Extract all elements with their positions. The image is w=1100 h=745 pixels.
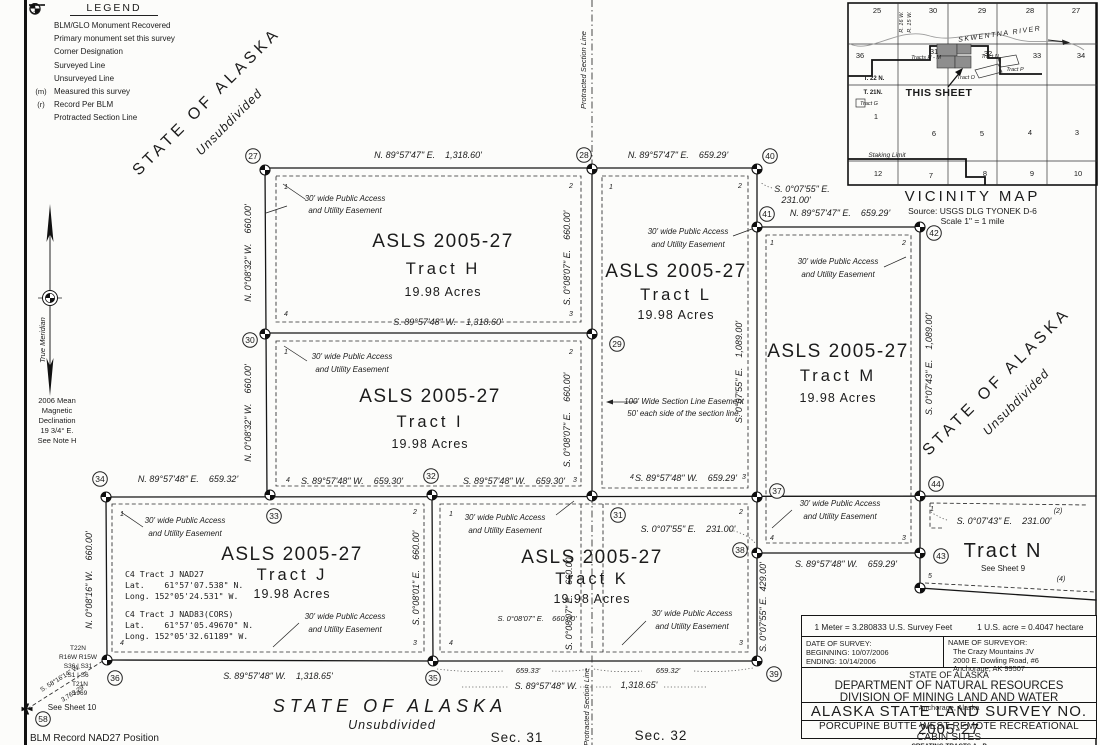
sec-32-label: Sec. 32 bbox=[635, 728, 688, 743]
plat-label: S. 0°07'55" E. bbox=[774, 184, 830, 194]
corner-number: 29 bbox=[612, 339, 622, 349]
corner-designation: 30 bbox=[243, 333, 258, 348]
plat-label: 30' wide Public Access bbox=[145, 516, 226, 525]
plat-label: S. 0°07'55" E. 231.00' bbox=[641, 524, 736, 534]
plat-label: Tract G bbox=[860, 101, 879, 107]
plat-label: 1 bbox=[930, 506, 934, 513]
corner-designation: 29 bbox=[610, 337, 625, 352]
plat-label: and Utility Easement bbox=[308, 625, 382, 634]
plat-label: 6 bbox=[932, 129, 936, 138]
corner-designation: 36 bbox=[108, 671, 123, 686]
plat-label: S. 89°57'48" W. 1,318.65' bbox=[223, 671, 333, 681]
corner-designation: 34 bbox=[93, 472, 108, 487]
plat-label: 2 bbox=[412, 509, 417, 516]
plat-label: S. 89°57'48" W. bbox=[515, 681, 578, 691]
plat-label: Long. 152°05'24.531" W. bbox=[125, 591, 238, 601]
plat-label: 659.32' bbox=[656, 666, 681, 675]
tract-m-title: ASLS 2005-27 bbox=[767, 341, 909, 362]
corner-number: 39 bbox=[769, 669, 779, 679]
vicinity-map-scale: Scale 1" = 1 mile bbox=[848, 216, 1097, 226]
plat-label: 19 3/4° E. bbox=[40, 426, 73, 435]
plat-label: 30' wide Public Access bbox=[465, 513, 546, 522]
legend-item: BLM/GLO Monument Recovered bbox=[28, 19, 240, 32]
corner-number: 33 bbox=[269, 511, 279, 521]
corner-number: 37 bbox=[772, 486, 782, 496]
agency-department: DEPARTMENT OF NATURAL RESOURCES bbox=[802, 680, 1096, 692]
plat-label: 28 bbox=[1026, 6, 1034, 15]
plat-label: 30' wide Public Access bbox=[800, 499, 881, 508]
corner-designation: 38 bbox=[733, 543, 748, 558]
plat-label: and Utility Easement bbox=[801, 270, 875, 279]
primary-monument-icon bbox=[752, 492, 762, 502]
vicinity-map-source: Source: USGS DLG TYONEK D-6 bbox=[848, 206, 1097, 216]
legend-item-label: Unsurveyed Line bbox=[54, 74, 114, 83]
plat-label: S. 89°57'48" W. 659.30' bbox=[301, 476, 403, 486]
corner-number: 42 bbox=[929, 228, 939, 238]
corner-designation: 42 bbox=[927, 226, 942, 241]
plat-label: 3 bbox=[902, 535, 906, 542]
plat-label: S. 0°07'55" E. 1,089.00' bbox=[734, 321, 744, 424]
north-arrow bbox=[38, 204, 62, 396]
corner-number: 40 bbox=[765, 151, 775, 161]
plat-label: 3 bbox=[573, 477, 577, 484]
tract-j-acres: 19.98 Acres bbox=[253, 587, 330, 601]
plat-label: N. 0°08'32" W. 660.00' bbox=[243, 204, 253, 302]
plat-label: 1 bbox=[284, 184, 288, 191]
corner-number: 27 bbox=[248, 151, 258, 161]
primary-monument-icon bbox=[587, 491, 597, 501]
primary-monument-icon bbox=[915, 548, 925, 558]
plat-label: 36 bbox=[856, 51, 864, 60]
plat-label: See Note H bbox=[38, 436, 77, 445]
corner-designation: 37 bbox=[770, 484, 785, 499]
plat-label: 2 bbox=[901, 240, 906, 247]
corner-designation: 28 bbox=[577, 148, 592, 163]
plat-label: (2) bbox=[1054, 508, 1063, 515]
date-ending: ENDING: 10/14/2006 bbox=[806, 657, 939, 666]
plat-label: S. 0°08'07" E. 660.00' bbox=[562, 372, 572, 467]
plat-label: 2 bbox=[738, 509, 743, 516]
survey-subtitle-line1: PORCUPINE BUTTE WEST REMOTE RECREATIONAL… bbox=[802, 721, 1096, 743]
tract-h-acres: 19.98 Acres bbox=[404, 285, 481, 299]
legend-item: (m) Measured this survey bbox=[28, 85, 240, 98]
protracted-section-line-label: Protracted Section Line bbox=[582, 668, 591, 745]
plat-label: 10 bbox=[1074, 169, 1082, 178]
primary-monument-icon bbox=[260, 329, 270, 339]
plat-label: 3 bbox=[742, 474, 746, 481]
corner-designation: 31 bbox=[611, 508, 626, 523]
plat-label: 33 bbox=[1033, 51, 1041, 60]
plat-label: 8 bbox=[983, 169, 987, 178]
legend-item-label: Protracted Section Line bbox=[54, 113, 137, 122]
tract-n-note: See Sheet 9 bbox=[981, 564, 1026, 573]
agency-division: DIVISION OF MINING LAND AND WATER bbox=[802, 692, 1096, 704]
plat-label: T. 21N. bbox=[863, 90, 882, 96]
plat-label: 12 bbox=[874, 169, 882, 178]
plat-label: 4 bbox=[1028, 128, 1032, 137]
tract-i-name: Tract I bbox=[396, 413, 463, 431]
corner-designation: 33 bbox=[267, 509, 282, 524]
corner-designation: 58 bbox=[36, 712, 51, 727]
plat-label: 4 bbox=[770, 535, 774, 542]
corner-designation: 32 bbox=[424, 469, 439, 484]
date-beginning: BEGINNING: 10/07/2006 bbox=[806, 648, 939, 657]
plat-label: Magnetic bbox=[42, 406, 73, 415]
plat-label: and Utility Easement bbox=[468, 526, 542, 535]
corner-number: 28 bbox=[579, 150, 589, 160]
plat-label: N. 89°57'47" E. 659.29' bbox=[628, 150, 729, 160]
tract-h-title: ASLS 2005-27 bbox=[372, 231, 514, 252]
primary-monument-icon bbox=[101, 492, 111, 502]
primary-monument-icon bbox=[752, 548, 762, 558]
legend-item-label: Record Per BLM bbox=[54, 100, 113, 109]
sec-31-label: Sec. 31 bbox=[491, 730, 544, 745]
tract-j-name: Tract J bbox=[257, 566, 328, 584]
plat-label: S. 0°08'07" E. 660.00' bbox=[564, 555, 574, 650]
plat-label: 30' wide Public Access bbox=[305, 194, 386, 203]
legend-item: Primary monument set this survey bbox=[28, 32, 240, 45]
plat-label: S. 89°57'48" W. 1,318.60' bbox=[393, 317, 503, 327]
leader-lines bbox=[121, 184, 906, 647]
plat-label: Tract P bbox=[1006, 67, 1024, 73]
title-block: 1 Meter = 3.280833 U.S. Survey Feet 1 U.… bbox=[801, 615, 1097, 739]
plat-label: T22N bbox=[70, 645, 86, 652]
corner-designation: 35 bbox=[426, 671, 441, 686]
plat-label: Lat. 61°57'07.538" N. bbox=[125, 580, 243, 590]
tract-i-title: ASLS 2005-27 bbox=[359, 386, 501, 407]
plat-label: 30' wide Public Access bbox=[648, 227, 729, 236]
tract-l-acres: 19.98 Acres bbox=[637, 308, 714, 322]
vicinity-map-title: VICINITY MAP bbox=[848, 188, 1097, 205]
plat-sheet: 27284041423029343332313744433836353958 A… bbox=[0, 0, 1100, 745]
primary-monument-icon bbox=[265, 490, 275, 500]
plat-label: Tracts H - M bbox=[911, 55, 941, 61]
plat-label: 4 bbox=[449, 640, 453, 647]
legend-item: (r) Record Per BLM bbox=[28, 98, 240, 111]
plat-label: 1 bbox=[874, 112, 878, 121]
plat-label: 50' each side of the section line. bbox=[627, 409, 741, 418]
corner-designation: 27 bbox=[246, 149, 261, 164]
primary-monument-icon bbox=[915, 491, 925, 501]
corner-designation: 39 bbox=[767, 667, 782, 682]
plat-label: N. 0°08'32" W. 660.00' bbox=[243, 364, 253, 462]
compass-rosette-icon bbox=[43, 291, 58, 306]
true-meridian-label: True Meridian bbox=[38, 317, 47, 363]
corner-designation: 44 bbox=[929, 477, 944, 492]
plat-label: 27 bbox=[1072, 6, 1080, 15]
plat-label: 2 bbox=[737, 183, 742, 190]
legend-item-label: Corner Designation bbox=[54, 47, 123, 56]
plat-label: 100' Wide Section Line Easement bbox=[624, 397, 745, 406]
plat-label: 30' wide Public Access bbox=[798, 257, 879, 266]
legend-title: LEGEND bbox=[70, 2, 158, 16]
date-of-survey: DATE OF SURVEY: BEGINNING: 10/07/2006 EN… bbox=[802, 637, 944, 667]
corner-number: 43 bbox=[936, 551, 946, 561]
corner-number: 35 bbox=[428, 673, 438, 683]
plat-label: 30' wide Public Access bbox=[305, 612, 386, 621]
legend-item-label: Primary monument set this survey bbox=[54, 34, 175, 43]
corner-number: 30 bbox=[245, 335, 255, 345]
tract-i-acres: 19.98 Acres bbox=[391, 437, 468, 451]
plat-label: 1 bbox=[770, 240, 774, 247]
plat-label: 7 bbox=[929, 171, 933, 180]
conversion-note: 1 Meter = 3.280833 U.S. Survey Feet 1 U.… bbox=[801, 615, 1097, 638]
legend-item: Unsurveyed Line bbox=[28, 72, 240, 85]
corner-designation: 40 bbox=[763, 149, 778, 164]
legend: LEGEND BLM/GLO Monument Recovered Primar… bbox=[28, 2, 240, 125]
plat-label: 1 bbox=[449, 511, 453, 518]
plat-label: T. 22 N. bbox=[864, 76, 885, 82]
primary-monument-icon bbox=[752, 656, 762, 666]
corner-number: 31 bbox=[613, 510, 623, 520]
state-of-alaska-label: STATE OF ALASKA bbox=[920, 305, 1075, 460]
plat-label: 1 bbox=[609, 184, 613, 191]
corner-number: 36 bbox=[110, 673, 120, 683]
blm-record-note: BLM Record NAD27 Position bbox=[30, 733, 159, 744]
plat-label: S. 89°57'48" W. 659.30' bbox=[463, 476, 565, 486]
tract-l-name: Tract L bbox=[640, 286, 712, 304]
tract-m-acres: 19.98 Acres bbox=[799, 391, 876, 405]
this-sheet-label: THIS SHEET bbox=[906, 87, 973, 99]
staking-limit-line bbox=[848, 159, 985, 185]
plat-label: 29 bbox=[978, 6, 986, 15]
plat-label: and Utility Easement bbox=[315, 365, 389, 374]
record-symbol: (r) bbox=[28, 100, 54, 109]
plat-label: 5 bbox=[928, 573, 932, 580]
plat-label: S. 0°07'43" E. 231.00' bbox=[957, 516, 1052, 526]
primary-monument-icon bbox=[102, 655, 112, 665]
plat-label: 25 bbox=[873, 6, 881, 15]
corner-number: 34 bbox=[95, 474, 105, 484]
protracted-section-line-label: Protracted Section Line bbox=[579, 31, 588, 109]
primary-monument-icon bbox=[752, 164, 762, 174]
corner-designation: 41 bbox=[760, 207, 775, 222]
meter-conversion: 1 Meter = 3.280833 U.S. Survey Feet bbox=[815, 622, 953, 632]
plat-label: (4) bbox=[1057, 576, 1066, 583]
plat-label: 3 bbox=[739, 640, 743, 647]
plat-label: 231.00' bbox=[780, 195, 811, 205]
surveyor: NAME OF SURVEYOR: The Crazy Mountains JV… bbox=[944, 637, 1096, 667]
plat-label: and Utility Easement bbox=[803, 512, 877, 521]
blm-monument-icon bbox=[22, 704, 33, 715]
plat-label: 1,318.65' bbox=[621, 680, 658, 690]
tract-h-name: Tract H bbox=[406, 260, 480, 278]
plat-label: and Utility Easement bbox=[308, 206, 382, 215]
see-sheet-10-label: See Sheet 10 bbox=[48, 703, 97, 712]
plat-label: Declination bbox=[38, 416, 75, 425]
acre-conversion: 1 U.S. acre = 0.4047 hectare bbox=[977, 622, 1083, 632]
plat-label: 3 bbox=[569, 311, 573, 318]
plat-label: Staking Limit bbox=[868, 152, 906, 159]
plat-label: Lat. 61°57'05.49670" N. bbox=[125, 620, 253, 630]
legend-item-label: Surveyed Line bbox=[54, 61, 105, 70]
plat-label: 34 bbox=[1077, 51, 1085, 60]
plat-label: N. 89°57'48" E. 659.32' bbox=[138, 474, 239, 484]
plat-label: S. 0°08'07" E. 660.00' bbox=[562, 210, 572, 305]
measured-symbol: (m) bbox=[28, 87, 54, 96]
plat-label: N. 89°57'47" E. 1,318.60' bbox=[374, 150, 482, 160]
plat-label: 2 bbox=[568, 349, 573, 356]
plat-label: 30' wide Public Access bbox=[312, 352, 393, 361]
plat-label: 30' wide Public Access bbox=[652, 609, 733, 618]
plat-label: 5 bbox=[980, 129, 984, 138]
plat-label: 3 bbox=[413, 640, 417, 647]
vicinity-caption: VICINITY MAP Source: USGS DLG TYONEK D-6… bbox=[848, 188, 1097, 226]
state-of-alaska-label: STATE OF ALASKA bbox=[273, 696, 507, 716]
primary-monument-icon bbox=[915, 583, 925, 593]
plat-label: S. 0°07'55" E. 429.00' bbox=[758, 562, 768, 652]
corner-number: 44 bbox=[931, 479, 941, 489]
primary-monument-icon bbox=[587, 164, 597, 174]
plat-label: 4 bbox=[284, 311, 288, 318]
plat-label: C4 Tract J NAD83(CORS) bbox=[125, 609, 233, 619]
corner-number: 38 bbox=[735, 545, 745, 555]
corner-number: 32 bbox=[426, 471, 436, 481]
plat-label: C4 Tract J NAD27 bbox=[125, 569, 204, 579]
legend-item: 1 Corner Designation bbox=[28, 45, 240, 58]
primary-monument-icon bbox=[587, 329, 597, 339]
plat-label: S. 0°07'43" E. 1,089.00' bbox=[924, 313, 934, 416]
plat-label: 659.33' bbox=[516, 666, 541, 675]
plat-label: and Utility Easement bbox=[651, 240, 725, 249]
plat-label: 4 bbox=[286, 477, 290, 484]
plat-label: 4 bbox=[630, 474, 634, 481]
legend-item-label: Measured this survey bbox=[54, 87, 130, 96]
legend-item: Protracted Section Line bbox=[28, 111, 240, 124]
plat-label: R16W R15W bbox=[59, 654, 98, 661]
plat-label: 3 bbox=[1075, 128, 1079, 137]
primary-monument-icon bbox=[427, 490, 437, 500]
primary-monument-icon bbox=[260, 165, 270, 175]
corner-number: 58 bbox=[38, 714, 48, 724]
primary-monument-icon bbox=[428, 656, 438, 666]
plat-label: 9 bbox=[1030, 169, 1034, 178]
plat-label: 4 bbox=[120, 640, 124, 647]
plat-label: and Utility Easement bbox=[655, 622, 729, 631]
survey-title: ALASKA STATE LAND SURVEY NO. 2005-27 bbox=[801, 702, 1097, 721]
plat-label: 1 bbox=[120, 511, 124, 518]
plat-label: 2 bbox=[568, 183, 573, 190]
tract-k-title: ASLS 2005-27 bbox=[521, 547, 663, 568]
tract-m-name: Tract M bbox=[800, 367, 876, 385]
plat-label: Unsubdivided bbox=[348, 718, 436, 732]
corner-number: 41 bbox=[762, 209, 772, 219]
plat-label: Tract N bbox=[981, 54, 999, 60]
plat-label: Long. 152°05'32.61189" W. bbox=[125, 631, 248, 641]
date-label: DATE OF SURVEY: bbox=[806, 639, 939, 648]
plat-label: N. 0°08'16" W. 660.00' bbox=[84, 531, 94, 629]
plat-label: 2006 Mean bbox=[38, 396, 76, 405]
tract-j-title: ASLS 2005-27 bbox=[221, 544, 363, 565]
survey-subtitle: PORCUPINE BUTTE WEST REMOTE RECREATIONAL… bbox=[801, 720, 1097, 740]
legend-item-label: BLM/GLO Monument Recovered bbox=[54, 21, 171, 30]
tract-l-title: ASLS 2005-27 bbox=[605, 261, 747, 282]
plat-label: R. 16 W. bbox=[899, 11, 905, 32]
plat-label: S. 0°08'01" E. 660.00' bbox=[411, 530, 421, 625]
plat-label: S. 89°57'48" W. 659.29' bbox=[795, 559, 897, 569]
plat-label: S. 89°57'48" W. 659.29' bbox=[635, 473, 737, 483]
highlighted-tracts bbox=[937, 44, 971, 68]
primary-monument-icon bbox=[752, 222, 762, 232]
tract-n-name: Tract N bbox=[964, 540, 1043, 562]
legend-item: Surveyed Line bbox=[28, 59, 240, 72]
corner-designation: 43 bbox=[934, 549, 949, 564]
plat-label: 1 bbox=[284, 349, 288, 356]
plat-label: and Utility Easement bbox=[148, 529, 222, 538]
plat-label: 30 bbox=[929, 6, 937, 15]
plat-label: Tract O bbox=[957, 75, 976, 81]
plat-label: R. 15 W. bbox=[907, 11, 913, 32]
